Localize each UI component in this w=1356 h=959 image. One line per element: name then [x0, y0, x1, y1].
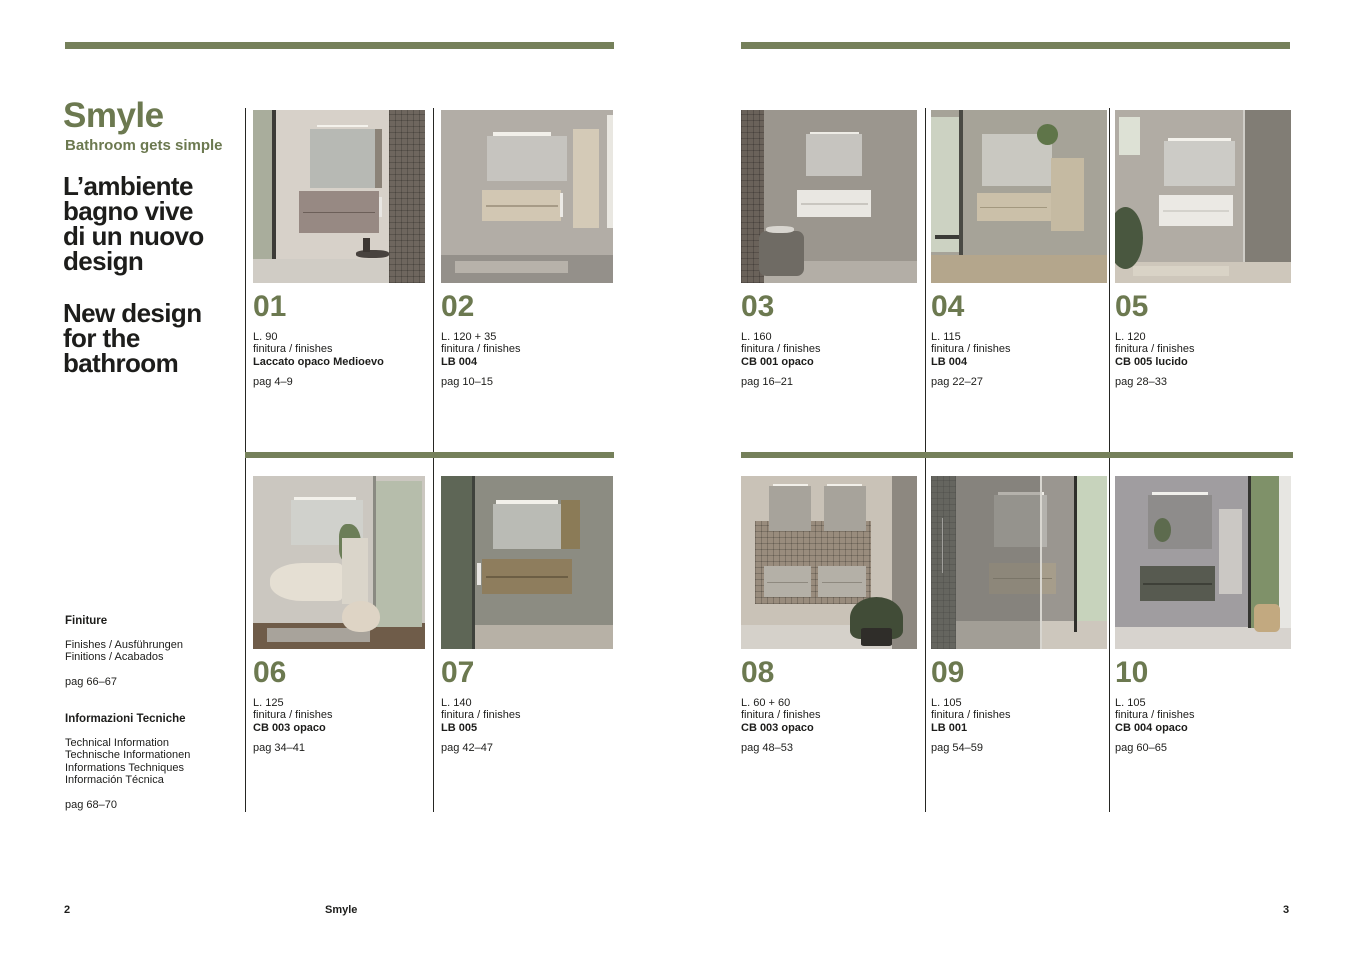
photo-layer — [561, 500, 580, 548]
catalog-item-08[interactable]: 08L. 60 + 60finitura / finishesCB 003 op… — [741, 458, 925, 812]
section-finishes-title: Finiture — [65, 615, 235, 628]
item-length: L. 120 — [1115, 331, 1293, 344]
item-finish-label: finitura / finishes — [741, 343, 925, 356]
catalog-item-01[interactable]: 01L. 90finitura / finishesLaccato opaco … — [245, 108, 433, 452]
item-pages: pag 28–33 — [1115, 376, 1293, 389]
grid-right-bottom: 08L. 60 + 60finitura / finishesCB 003 op… — [741, 458, 1293, 812]
item-number: 02 — [441, 291, 621, 323]
photo-layer — [759, 231, 805, 276]
photo-layer — [303, 212, 375, 213]
item-finish-name: LB 004 — [931, 356, 1109, 369]
photo-layer — [959, 110, 963, 255]
headline-italian: L’ambiente bagno vive di un nuovo design — [63, 174, 204, 274]
photo-layer — [375, 481, 421, 626]
photo-layer — [441, 476, 474, 649]
item-number: 07 — [441, 657, 621, 689]
catalog-item-04[interactable]: 04L. 115finitura / finishesLB 004pag 22–… — [925, 108, 1109, 452]
item-finish-label: finitura / finishes — [253, 343, 433, 356]
photo-layer — [1040, 476, 1042, 649]
item-finish-name: CB 005 lucido — [1115, 356, 1293, 369]
photo-layer — [270, 563, 342, 601]
accent-bar-top-right — [741, 42, 1290, 49]
item-length: L. 90 — [253, 331, 433, 344]
item-number: 05 — [1115, 291, 1293, 323]
accent-bar-top-left — [65, 42, 614, 49]
photo-layer — [342, 538, 368, 604]
item-finish-label: finitura / finishes — [1115, 709, 1293, 722]
photo-layer — [1133, 266, 1230, 276]
item-number: 04 — [931, 291, 1109, 323]
photo-layer — [1163, 210, 1230, 211]
photo-layer — [389, 110, 425, 283]
item-pages: pag 48–53 — [741, 742, 925, 755]
section-line: Información Técnica — [65, 774, 235, 787]
headline-english: New design for the bathroom — [63, 301, 201, 376]
item-pages: pag 34–41 — [253, 742, 433, 755]
photo-layer — [493, 504, 562, 549]
item-finish-label: finitura / finishes — [931, 709, 1109, 722]
item-finish-name: LB 005 — [441, 722, 621, 735]
item-length: L. 160 — [741, 331, 925, 344]
photo-layer — [767, 582, 807, 583]
photo-layer — [310, 129, 382, 188]
brand-title: Smyle — [63, 98, 164, 133]
photo-layer — [342, 601, 380, 632]
photo-layer — [487, 136, 566, 181]
photo-layer — [861, 628, 893, 645]
section-finishes-lines: Finishes / Ausführungen Finitions / Acab… — [65, 639, 235, 664]
photo-layer — [455, 261, 569, 273]
photo-layer — [477, 563, 480, 585]
grid-left-top: 01L. 90finitura / finishesLaccato opaco … — [245, 108, 621, 452]
item-number: 10 — [1115, 657, 1293, 689]
item-photo — [253, 476, 425, 649]
catalog-item-03[interactable]: 03L. 160finitura / finishesCB 001 opacop… — [741, 108, 925, 452]
item-photo — [741, 110, 917, 283]
item-length: L. 105 — [1115, 697, 1293, 710]
photo-layer — [931, 476, 1042, 649]
item-photo — [441, 476, 613, 649]
item-photo — [1115, 110, 1291, 283]
photo-layer — [486, 576, 569, 577]
photo-layer — [1051, 158, 1084, 231]
item-pages: pag 10–15 — [441, 376, 621, 389]
catalog-item-06[interactable]: 06L. 125finitura / finishesCB 003 opacop… — [245, 458, 433, 812]
section-line: Informations Techniques — [65, 762, 235, 775]
item-finish-name: CB 004 opaco — [1115, 722, 1293, 735]
item-finish-name: LB 001 — [931, 722, 1109, 735]
photo-layer — [1219, 509, 1242, 594]
section-line: Finitions / Acabados — [65, 651, 235, 664]
item-number: 01 — [253, 291, 433, 323]
photo-layer — [1077, 476, 1107, 621]
headline-english-line: bathroom — [63, 351, 201, 376]
section-technical-lines: Technical Information Technische Informa… — [65, 737, 235, 787]
page-number-left: 2 — [64, 904, 70, 916]
photo-layer — [1254, 604, 1280, 632]
item-length: L. 115 — [931, 331, 1109, 344]
photo-layer — [1164, 141, 1234, 186]
item-pages: pag 54–59 — [931, 742, 1109, 755]
photo-layer — [931, 117, 961, 252]
grid-right-top: 03L. 160finitura / finishesCB 001 opacop… — [741, 108, 1293, 452]
photo-layer — [806, 134, 862, 176]
photo-layer — [766, 226, 794, 233]
photo-layer — [980, 207, 1047, 208]
headline-italian-line: design — [63, 249, 204, 274]
catalog-spread: { "colors": { "accent_bar": "#75805a", "… — [0, 0, 1356, 959]
sidebar-sections: Finiture Finishes / Ausführungen Finitio… — [65, 615, 235, 811]
section-technical-pages: pag 68–70 — [65, 799, 235, 812]
brand-tagline: Bathroom gets simple — [65, 138, 223, 153]
footer-brand-label: Smyle — [325, 904, 357, 916]
item-finish-label: finitura / finishes — [741, 709, 925, 722]
item-photo — [931, 476, 1107, 649]
photo-layer — [472, 476, 475, 649]
grid-left-bottom: 06L. 125finitura / finishesCB 003 opacop… — [245, 458, 621, 812]
photo-layer — [573, 129, 599, 228]
photo-layer — [1243, 110, 1291, 262]
photo-layer — [253, 110, 274, 259]
section-technical-title: Informazioni Tecniche — [65, 713, 235, 726]
photo-layer — [1074, 476, 1078, 632]
item-number: 06 — [253, 657, 433, 689]
item-finish-label: finitura / finishes — [931, 343, 1109, 356]
photo-layer — [1279, 476, 1291, 628]
item-finish-name: CB 001 opaco — [741, 356, 925, 369]
item-photo — [931, 110, 1107, 283]
item-pages: pag 4–9 — [253, 376, 433, 389]
item-finish-name: LB 004 — [441, 356, 621, 369]
item-finish-label: finitura / finishes — [441, 709, 621, 722]
photo-layer — [822, 582, 862, 583]
photo-layer — [1248, 476, 1252, 628]
item-finish-name: CB 003 opaco — [253, 722, 433, 735]
photo-layer — [486, 205, 558, 206]
photo-layer — [560, 193, 563, 217]
item-photo — [1115, 476, 1291, 649]
page-number-right: 3 — [1283, 904, 1289, 916]
photo-layer — [824, 486, 866, 531]
item-length: L. 60 + 60 — [741, 697, 925, 710]
photo-layer — [1154, 518, 1172, 542]
item-finish-name: CB 003 opaco — [741, 722, 925, 735]
item-pages: pag 42–47 — [441, 742, 621, 755]
item-length: L. 140 — [441, 697, 621, 710]
item-pages: pag 60–65 — [1115, 742, 1293, 755]
item-number: 09 — [931, 657, 1109, 689]
photo-layer — [375, 129, 382, 188]
section-finishes-pages: pag 66–67 — [65, 676, 235, 689]
item-number: 08 — [741, 657, 925, 689]
item-finish-label: finitura / finishes — [441, 343, 621, 356]
section-line: Technische Informationen — [65, 749, 235, 762]
photo-layer — [1243, 110, 1245, 262]
catalog-item-10[interactable]: 10L. 105finitura / finishesCB 004 opacop… — [1109, 458, 1293, 812]
item-length: L. 120 + 35 — [441, 331, 621, 344]
section-line: Technical Information — [65, 737, 235, 750]
item-pages: pag 22–27 — [931, 376, 1109, 389]
item-length: L. 105 — [931, 697, 1109, 710]
photo-layer — [1143, 583, 1212, 584]
item-photo — [441, 110, 613, 283]
catalog-item-09[interactable]: 09L. 105finitura / finishesLB 001pag 54–… — [925, 458, 1109, 812]
item-pages: pag 16–21 — [741, 376, 925, 389]
section-line: Finishes / Ausführungen — [65, 639, 235, 652]
catalog-item-05[interactable]: 05L. 120finitura / finishesCB 005 lucido… — [1109, 108, 1293, 452]
photo-layer — [931, 255, 1107, 283]
item-finish-name: Laccato opaco Medioevo — [253, 356, 433, 369]
catalog-item-02[interactable]: 02L. 120 + 35finitura / finishesLB 004pa… — [433, 108, 621, 452]
photo-layer — [769, 486, 811, 531]
photo-layer — [317, 125, 369, 128]
item-length: L. 125 — [253, 697, 433, 710]
item-finish-label: finitura / finishes — [253, 709, 433, 722]
item-number: 03 — [741, 291, 925, 323]
photo-layer — [935, 235, 960, 239]
photo-layer — [363, 238, 370, 252]
photo-layer — [1037, 124, 1058, 145]
item-photo — [741, 476, 917, 649]
photo-layer — [607, 115, 613, 227]
photo-layer — [1119, 117, 1140, 155]
photo-layer — [379, 197, 381, 218]
photo-layer — [356, 250, 389, 258]
photo-layer — [272, 110, 276, 259]
item-photo — [253, 110, 425, 283]
item-finish-label: finitura / finishes — [1115, 343, 1293, 356]
catalog-item-07[interactable]: 07L. 140finitura / finishesLB 005pag 42–… — [433, 458, 621, 812]
photo-layer — [801, 203, 868, 204]
